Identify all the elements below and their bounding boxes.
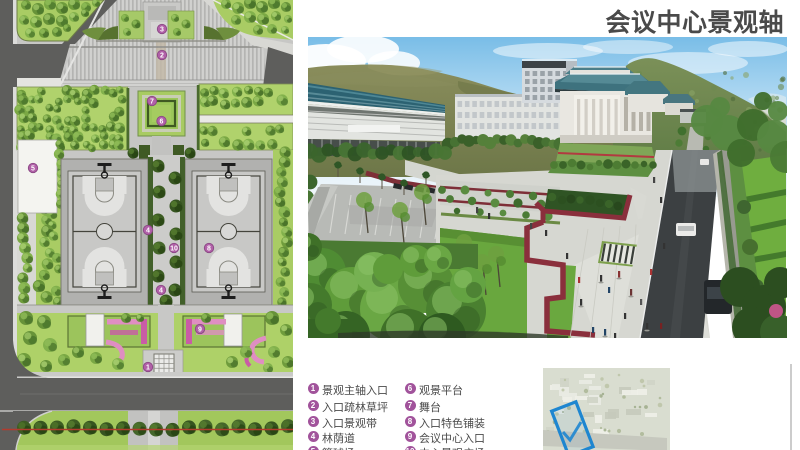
svg-text:5: 5	[31, 166, 35, 173]
svg-text:7: 7	[150, 99, 154, 106]
svg-text:10: 10	[170, 246, 178, 253]
svg-text:2: 2	[160, 53, 164, 60]
svg-text:3: 3	[160, 27, 164, 34]
svg-text:9: 9	[198, 327, 202, 334]
svg-text:4: 4	[159, 288, 163, 295]
svg-text:4: 4	[146, 228, 150, 235]
svg-text:1: 1	[146, 365, 150, 372]
svg-text:8: 8	[207, 246, 211, 253]
svg-text:6: 6	[160, 119, 164, 126]
